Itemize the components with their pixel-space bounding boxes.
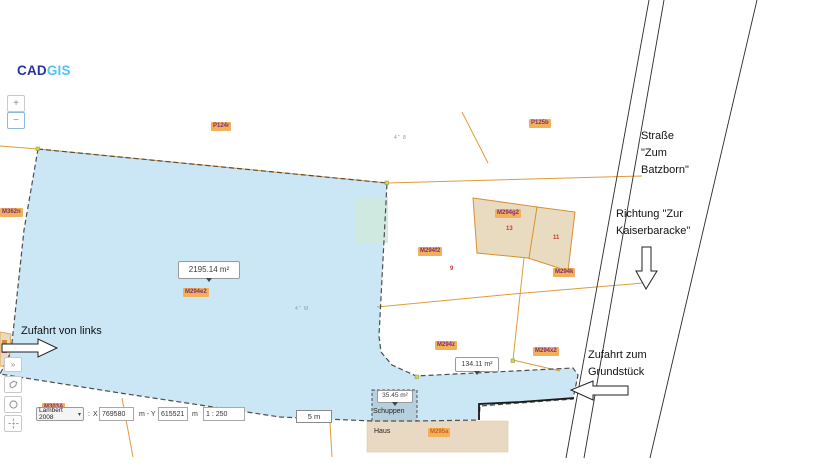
house-number: 11 xyxy=(553,235,559,241)
parcel-label-m294z: M294z xyxy=(435,341,457,350)
x-coordinate-input[interactable] xyxy=(99,407,134,421)
map-scale-input[interactable] xyxy=(203,407,245,421)
cadgis-app: { "brand": { "cad": "CAD", "gis": "GIS" … xyxy=(0,0,820,465)
parcel-label-p125b: P125b xyxy=(529,119,551,128)
parcel-label-m294e2: M294e2 xyxy=(183,288,209,297)
pointer-triangle xyxy=(474,371,480,375)
colon-label: : xyxy=(88,411,90,418)
parcel-label-m295a: M295a xyxy=(428,428,450,437)
parcel-label-m362n: M362n xyxy=(0,208,23,217)
circle-icon xyxy=(8,399,19,410)
area-measurement-label: 35.45 m² xyxy=(377,390,413,403)
cadastral-mark: 4" 8 xyxy=(394,135,407,141)
minus-icon: − xyxy=(13,116,19,126)
app-logo: CADGIS xyxy=(17,63,71,78)
chevron-down-icon: ▾ xyxy=(78,411,81,418)
parcel-label-m294x2: M294x2 xyxy=(533,347,559,356)
between-label: m - Y xyxy=(139,411,156,418)
annotation-zufahrt-links: Zufahrt von links xyxy=(21,323,102,340)
annotation-zufahrt-grundstueck: Zufahrt zum Grundstück xyxy=(588,347,647,381)
move-icon xyxy=(8,418,19,429)
circle-select-button[interactable] xyxy=(4,396,22,413)
polygon-select-button[interactable] xyxy=(4,376,22,393)
chevrons-right-icon: » xyxy=(11,361,15,369)
crs-select[interactable]: Lambert 2008 ▾ xyxy=(36,407,84,421)
zoom-out-button[interactable]: − xyxy=(7,112,25,129)
area-measurement-label: 134.11 m² xyxy=(455,357,499,372)
logo-cad: CAD xyxy=(17,63,47,78)
house-number: 9 xyxy=(450,266,453,272)
down-arrow-icon xyxy=(636,247,657,289)
haus-label: Haus xyxy=(374,428,390,435)
parcel-label-m294g2: M294g2 xyxy=(495,209,521,218)
main-parcel[interactable] xyxy=(0,149,578,421)
parcel-label-p124r: P124r xyxy=(211,122,231,131)
pan-button[interactable] xyxy=(4,415,22,432)
parcel-label-m294f2: M294f2 xyxy=(418,247,442,256)
cadastral-mark: 4" M xyxy=(295,306,309,312)
unit-label: m xyxy=(192,411,198,418)
logo-gis: GIS xyxy=(47,63,71,78)
area-measurement-label: 2195.14 m² xyxy=(178,261,240,279)
left-strip-mark xyxy=(2,340,7,344)
annotation-richtung: Richtung "Zur Kaiserbaracke" xyxy=(616,206,690,240)
zoom-in-button[interactable]: + xyxy=(7,95,25,112)
polygon-icon xyxy=(8,379,19,390)
x-label: X xyxy=(93,411,98,418)
plus-icon: + xyxy=(13,99,19,109)
annotation-strasse: Straße "Zum Batzborn" xyxy=(641,128,689,179)
house-number: 13 xyxy=(506,226,513,232)
y-coordinate-input[interactable] xyxy=(158,407,188,421)
pointer-triangle xyxy=(392,402,398,406)
pointer-triangle xyxy=(206,278,212,282)
parcel-inner-patch xyxy=(356,197,388,243)
parcel-label-m294k: M294k xyxy=(553,268,575,277)
crs-select-value: Lambert 2008 xyxy=(39,407,78,421)
scale-bar: 5 m xyxy=(296,410,332,423)
expand-tools-button[interactable]: » xyxy=(4,357,22,372)
schuppen-label: Schuppen xyxy=(373,408,405,415)
